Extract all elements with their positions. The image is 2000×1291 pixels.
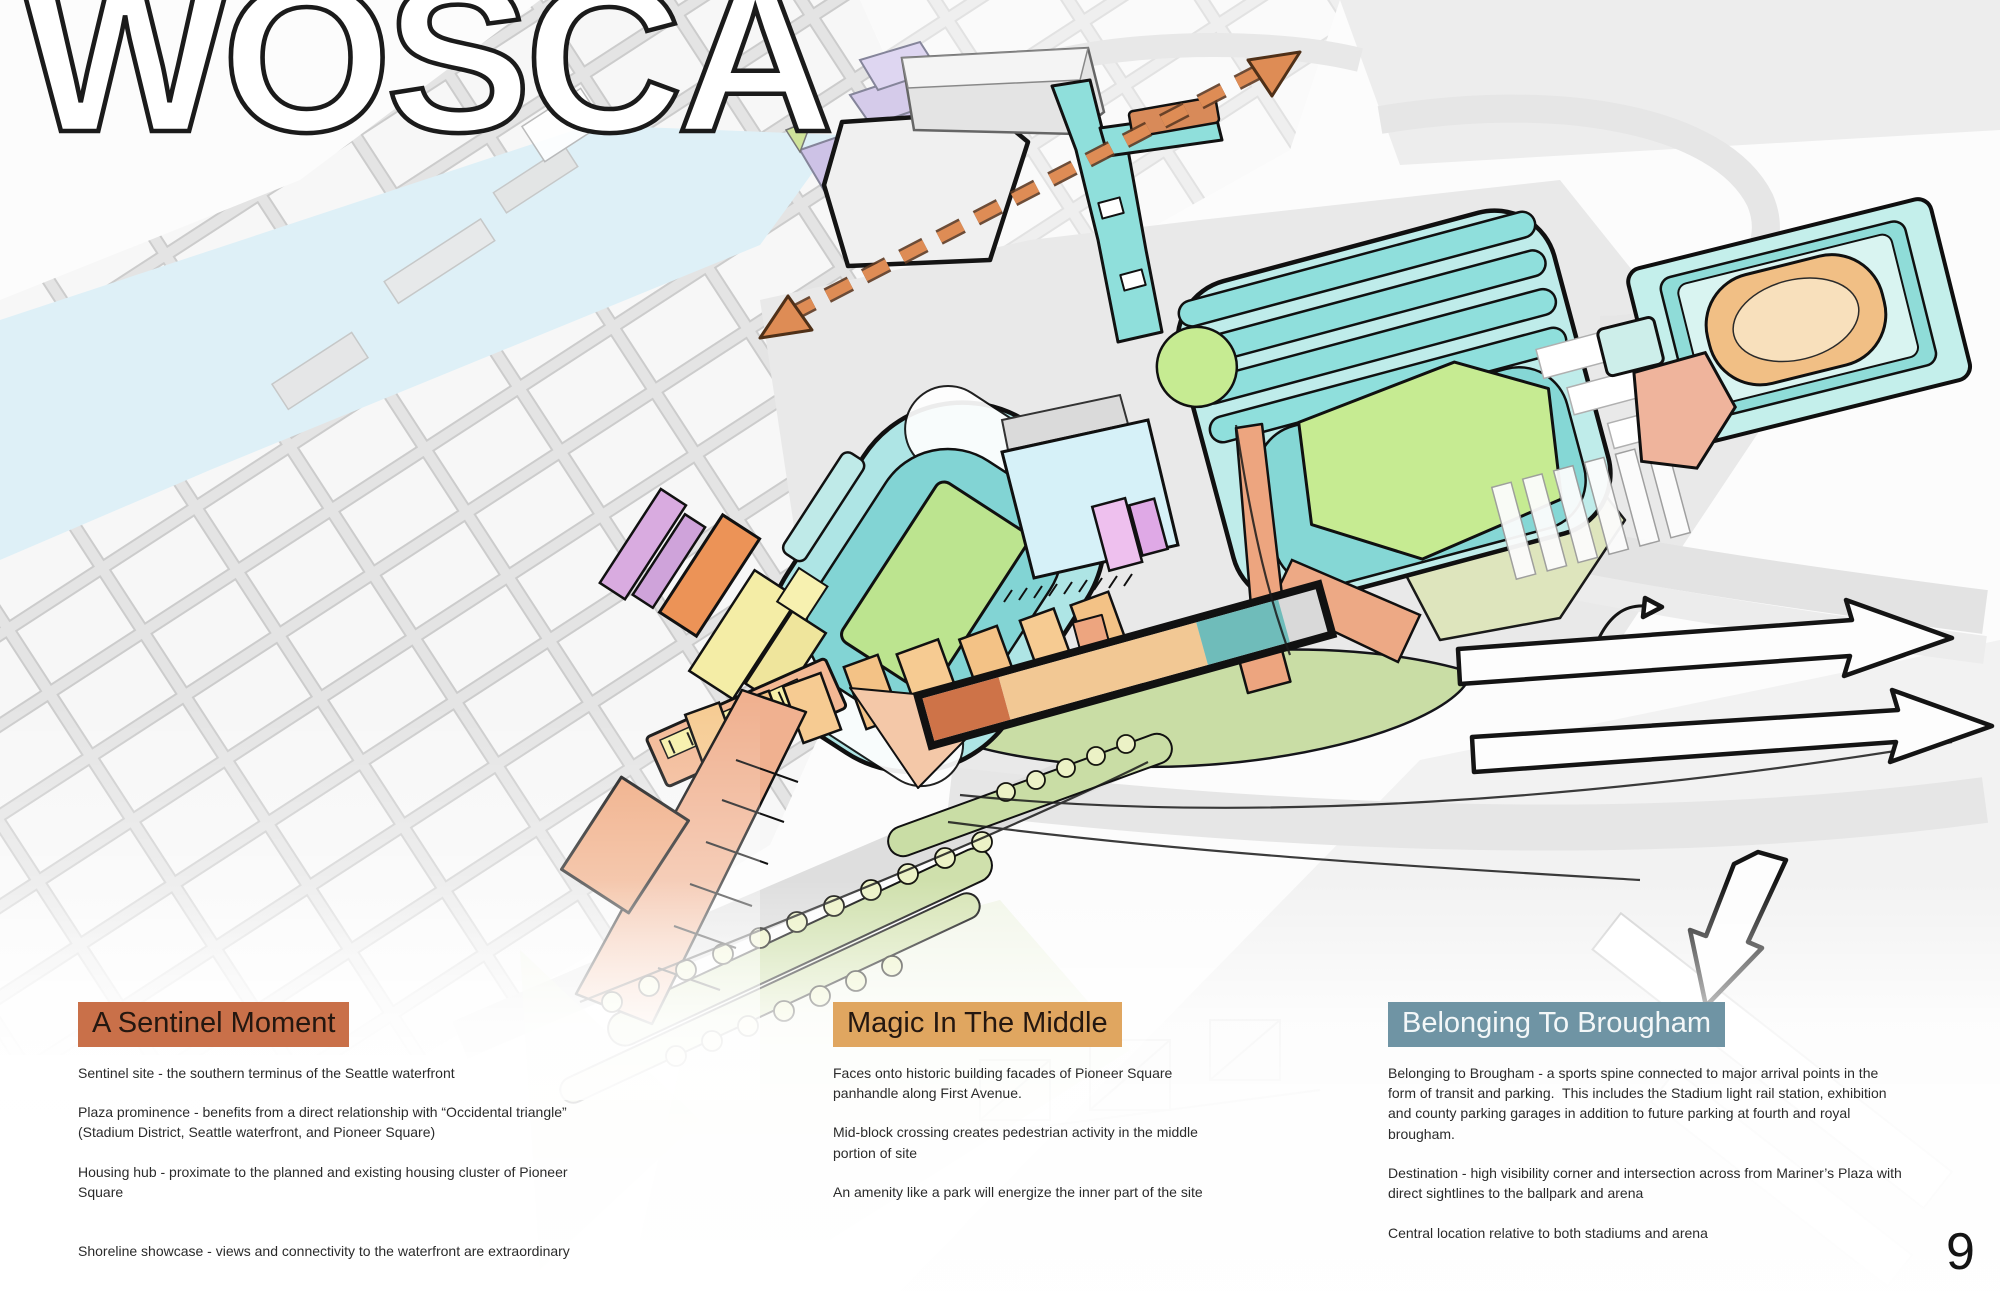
page-title: WOSCA <box>22 0 828 164</box>
section-header-brougham: Belonging To Brougham <box>1388 1002 1725 1047</box>
column-magic: Magic In The Middle Faces onto historic … <box>833 1002 1233 1202</box>
page-number: 9 <box>1946 1226 1975 1278</box>
section-header-magic: Magic In The Middle <box>833 1002 1122 1047</box>
paragraph: Plaza prominence - benefits from a direc… <box>78 1102 610 1143</box>
parking-lot-outline <box>824 112 1028 266</box>
column-brougham: Belonging To Brougham Belonging to Broug… <box>1388 1002 1905 1243</box>
paragraph: Belonging to Brougham - a sports spine c… <box>1388 1063 1905 1144</box>
paragraph: Shoreline showcase - views and connectiv… <box>78 1241 610 1261</box>
paragraph: Faces onto historic building facades of … <box>833 1063 1233 1104</box>
section-header-sentinel: A Sentinel Moment <box>78 1002 349 1047</box>
paragraph: Housing hub - proximate to the planned a… <box>78 1162 610 1203</box>
paragraph: Mid-block crossing creates pedestrian ac… <box>833 1122 1233 1163</box>
column-sentinel: A Sentinel Moment Sentinel site - the so… <box>78 1002 610 1262</box>
paragraph: Sentinel site - the southern terminus of… <box>78 1063 610 1083</box>
paragraph: Destination - high visibility corner and… <box>1388 1163 1905 1204</box>
slide: { "page": { "title": "WOSCA", "number": … <box>0 0 2000 1291</box>
paragraph: Central location relative to both stadiu… <box>1388 1223 1905 1243</box>
paragraph: An amenity like a park will energize the… <box>833 1182 1233 1202</box>
